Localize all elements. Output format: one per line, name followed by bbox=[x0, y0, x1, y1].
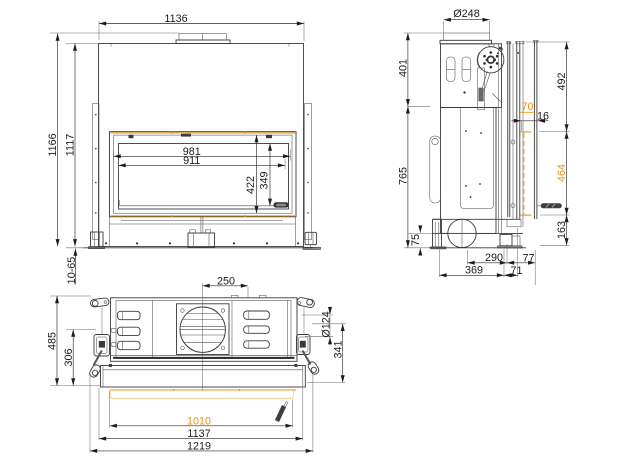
svg-text:464: 464 bbox=[556, 164, 568, 182]
svg-text:401: 401 bbox=[398, 59, 410, 77]
svg-text:485: 485 bbox=[47, 332, 59, 350]
svg-text:1117: 1117 bbox=[64, 134, 76, 156]
svg-text:422: 422 bbox=[245, 176, 257, 194]
svg-text:Ø124: Ø124 bbox=[320, 311, 332, 337]
svg-text:1219: 1219 bbox=[187, 440, 211, 452]
svg-text:163: 163 bbox=[556, 221, 568, 239]
svg-text:1010: 1010 bbox=[187, 415, 211, 427]
svg-text:1136: 1136 bbox=[164, 13, 187, 25]
svg-text:911: 911 bbox=[183, 155, 200, 167]
svg-text:1166: 1166 bbox=[47, 133, 59, 156]
svg-text:250: 250 bbox=[217, 276, 235, 288]
svg-text:Ø248: Ø248 bbox=[453, 8, 479, 20]
svg-text:765: 765 bbox=[398, 167, 410, 185]
svg-text:290: 290 bbox=[485, 252, 503, 264]
svg-text:306: 306 bbox=[63, 348, 75, 366]
svg-text:75: 75 bbox=[410, 234, 422, 246]
svg-text:369: 369 bbox=[465, 265, 483, 277]
svg-text:70: 70 bbox=[521, 101, 533, 113]
svg-text:1137: 1137 bbox=[187, 428, 210, 440]
svg-text:492: 492 bbox=[556, 72, 568, 90]
svg-text:349: 349 bbox=[259, 171, 271, 189]
svg-text:341: 341 bbox=[332, 340, 344, 358]
svg-text:10-65: 10-65 bbox=[66, 257, 78, 285]
